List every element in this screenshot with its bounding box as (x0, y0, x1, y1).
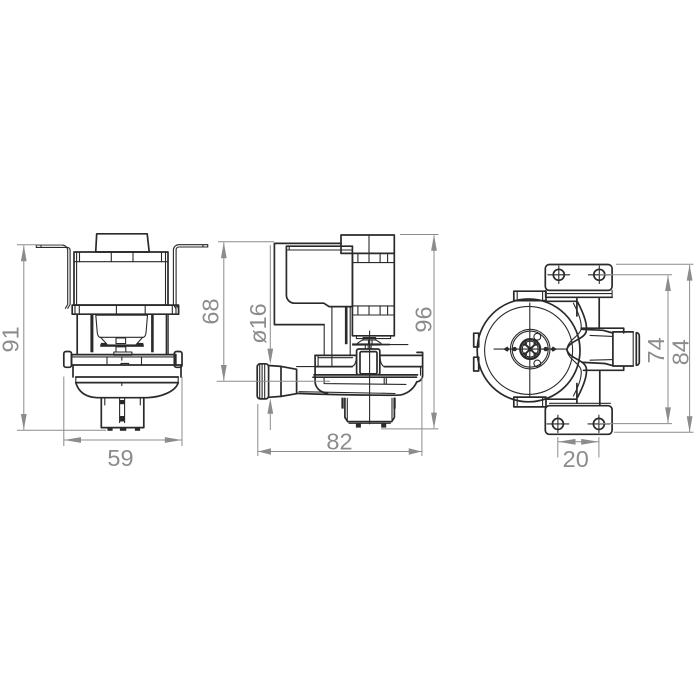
svg-text:74: 74 (643, 337, 669, 363)
svg-text:84: 84 (668, 339, 694, 365)
svg-text:59: 59 (107, 445, 133, 471)
svg-text:68: 68 (198, 298, 224, 324)
svg-text:ø16: ø16 (245, 303, 271, 344)
svg-text:20: 20 (563, 446, 589, 472)
svg-text:96: 96 (410, 306, 436, 332)
svg-text:82: 82 (326, 428, 352, 454)
svg-text:91: 91 (0, 326, 23, 352)
